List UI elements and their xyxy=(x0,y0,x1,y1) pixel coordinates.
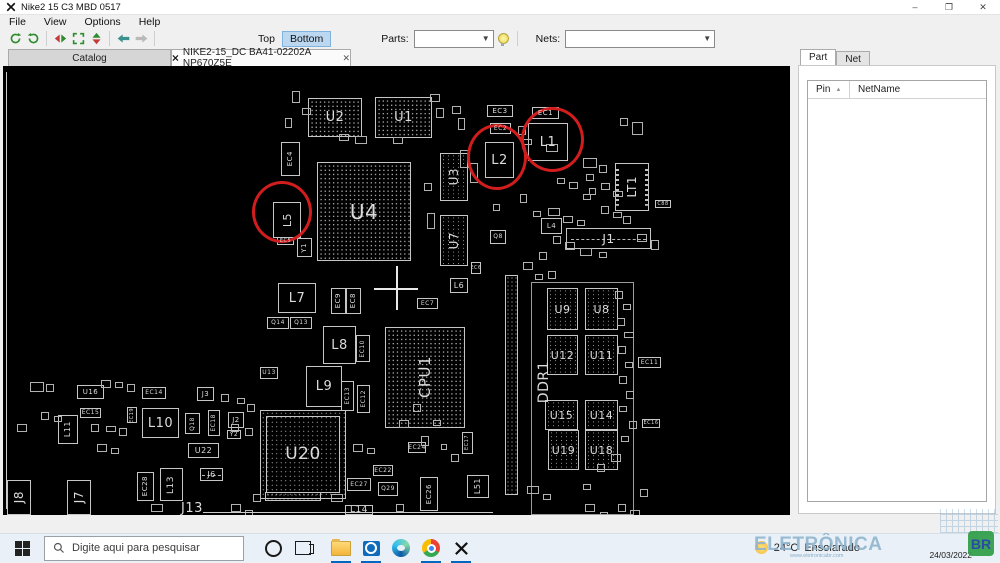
small-part xyxy=(600,512,608,515)
small-part xyxy=(533,211,541,217)
small-part xyxy=(651,240,659,250)
small-part xyxy=(353,444,363,452)
small-part xyxy=(101,380,111,388)
forward-arrow-icon[interactable] xyxy=(132,31,150,46)
chevron-down-icon: ▼ xyxy=(482,34,490,43)
small-part xyxy=(613,191,623,197)
component-Y1[interactable]: Y1 xyxy=(297,238,312,257)
temperature: 24°C xyxy=(774,542,799,554)
title-bar: Nike2 15 C3 MBD 0517 – ❐ ✕ xyxy=(0,0,1000,15)
component-EC17[interactable]: EC17 xyxy=(462,432,473,454)
component-C88[interactable]: C88 xyxy=(655,200,671,208)
component-U13[interactable]: U13 xyxy=(260,367,278,379)
menu-help[interactable]: Help xyxy=(130,16,170,28)
small-part xyxy=(451,454,459,462)
small-part xyxy=(221,394,229,402)
crosshair-v xyxy=(396,266,398,310)
small-part xyxy=(539,252,547,260)
small-part xyxy=(46,384,54,392)
parts-label: Parts: xyxy=(381,33,408,45)
small-part xyxy=(17,424,27,432)
small-part xyxy=(557,178,565,184)
toolbar: Top Bottom Parts: ▼ Nets: ▼ xyxy=(0,29,1000,48)
cortana-icon xyxy=(265,540,282,557)
component-EC7[interactable]: EC7 xyxy=(417,298,438,309)
back-arrow-icon[interactable] xyxy=(114,31,132,46)
small-part xyxy=(331,494,343,502)
small-part xyxy=(619,406,627,412)
component-L9[interactable]: L9 xyxy=(306,366,342,407)
top-side-button[interactable]: Top xyxy=(251,32,282,46)
component-EC18[interactable]: EC18 xyxy=(208,410,220,436)
small-part xyxy=(597,464,605,472)
small-part xyxy=(91,424,99,432)
small-part xyxy=(452,106,461,114)
small-part xyxy=(493,204,500,211)
component-Q29[interactable]: Q29 xyxy=(378,482,398,496)
tab-board-file[interactable]: NIKE2-15_DC BA41-02202A NP670Z5E ✕ xyxy=(171,49,351,66)
small-part xyxy=(553,236,561,244)
highlight-bulb-icon[interactable] xyxy=(498,33,509,44)
small-part xyxy=(621,436,629,442)
task-view-icon xyxy=(295,541,311,555)
tab-close-icon[interactable]: ✕ xyxy=(342,53,350,64)
small-part xyxy=(543,494,551,500)
component-U1[interactable]: U1 xyxy=(375,97,432,138)
small-part xyxy=(399,420,409,428)
flip-vertical-icon[interactable] xyxy=(87,31,105,46)
component-Q14[interactable]: Q14 xyxy=(267,317,289,329)
app-logo-icon xyxy=(6,2,16,12)
component-L14[interactable]: L14 xyxy=(345,505,373,515)
component-LT1[interactable]: LT1 xyxy=(615,163,649,211)
small-part xyxy=(619,376,627,384)
flip-horizontal-icon[interactable] xyxy=(51,31,69,46)
sun-icon xyxy=(755,541,768,554)
component-L10[interactable]: L10 xyxy=(142,408,179,438)
component-J6[interactable]: J6 xyxy=(200,468,223,481)
small-part xyxy=(247,404,255,412)
small-part xyxy=(523,262,533,270)
component-CPU1[interactable]: CPU1 xyxy=(385,327,465,428)
small-part xyxy=(624,332,634,338)
small-part xyxy=(548,208,560,216)
small-part xyxy=(580,248,592,256)
menu-bar: File View Options Help xyxy=(0,15,1000,29)
component-U20[interactable]: U20 xyxy=(260,410,346,499)
small-part xyxy=(441,444,447,450)
component-EC10[interactable]: EC10 xyxy=(356,335,370,362)
small-part xyxy=(119,428,127,436)
nets-label: Nets: xyxy=(536,33,561,45)
component-Q8[interactable]: Q8 xyxy=(490,230,506,244)
component-U2[interactable]: U2 xyxy=(308,98,362,137)
task-view-button[interactable] xyxy=(288,534,318,563)
menu-options[interactable]: Options xyxy=(76,16,130,28)
component-J3[interactable]: J3 xyxy=(197,387,214,401)
zoom-fit-icon[interactable] xyxy=(69,31,87,46)
component-EC9[interactable]: EC9 xyxy=(331,288,346,314)
sort-asc-icon: ▲ xyxy=(835,87,841,93)
start-button[interactable] xyxy=(0,534,44,563)
small-part xyxy=(565,242,575,250)
small-part xyxy=(292,91,300,103)
small-part xyxy=(41,412,49,420)
tab-net[interactable]: Net xyxy=(836,51,870,66)
small-part xyxy=(632,122,643,135)
small-part xyxy=(393,137,403,144)
board-outline-line xyxy=(6,72,7,509)
outlook-button[interactable] xyxy=(356,534,386,563)
component-EC16[interactable]: EC16 xyxy=(642,419,660,428)
window-title: Nike2 15 C3 MBD 0517 xyxy=(21,2,121,13)
col-pin[interactable]: Pin xyxy=(816,84,830,95)
small-part xyxy=(367,448,375,454)
taskbar-date[interactable]: 24/03/2022 xyxy=(929,550,972,560)
small-part xyxy=(111,448,119,454)
small-part xyxy=(106,426,116,432)
chevron-down-icon: ▼ xyxy=(703,34,711,43)
board-outline-line xyxy=(203,512,493,513)
file-explorer-button[interactable] xyxy=(326,534,356,563)
component-U7[interactable]: U7 xyxy=(440,215,468,266)
small-part xyxy=(599,252,607,258)
small-part xyxy=(30,382,44,392)
component-J8[interactable]: J8 xyxy=(7,480,31,515)
small-part xyxy=(458,118,465,130)
small-part xyxy=(430,94,440,102)
highlight-circle xyxy=(252,181,312,243)
small-part xyxy=(285,118,292,128)
small-part xyxy=(151,504,163,512)
small-part xyxy=(618,346,626,354)
small-part xyxy=(433,420,441,426)
pin-table[interactable]: Pin ▲ NetName xyxy=(807,80,987,502)
small-part xyxy=(620,118,628,126)
menu-view[interactable]: View xyxy=(35,16,76,28)
component-J7[interactable]: J7 xyxy=(67,480,91,515)
small-part xyxy=(586,174,594,181)
small-part xyxy=(520,194,527,203)
small-part xyxy=(625,362,633,368)
component-EC13[interactable]: EC13 xyxy=(341,381,354,411)
component-EC28[interactable]: EC28 xyxy=(137,472,154,501)
chrome-icon xyxy=(422,539,440,557)
component-EC6[interactable]: EC6 xyxy=(471,262,481,274)
component-EC14[interactable]: EC14 xyxy=(142,387,166,399)
folder-icon xyxy=(331,541,351,556)
edge-button[interactable] xyxy=(386,534,416,563)
bottom-side-button[interactable]: Bottom xyxy=(282,31,331,47)
small-part xyxy=(413,404,421,412)
component-L4[interactable]: L4 xyxy=(541,218,562,234)
small-part xyxy=(127,384,135,392)
small-part xyxy=(617,318,625,326)
small-part xyxy=(548,271,556,279)
small-part xyxy=(563,216,573,223)
component-L51[interactable]: L51 xyxy=(467,475,489,498)
boardviewer-icon xyxy=(454,541,469,556)
parts-combobox[interactable]: ▼ xyxy=(414,30,494,48)
component-EC24[interactable]: EC24 xyxy=(408,442,426,453)
small-part xyxy=(253,494,261,502)
nets-combobox[interactable]: ▼ xyxy=(565,30,715,48)
component-Q13[interactable]: Q13 xyxy=(290,317,312,329)
component-EC11[interactable]: EC11 xyxy=(638,357,661,368)
taskbar-search-input[interactable]: Digite aqui para pesquisar xyxy=(44,536,244,561)
component-EC15[interactable]: EC15 xyxy=(80,408,101,418)
component-U22[interactable]: U22 xyxy=(188,443,219,458)
tab-catalog[interactable]: Catalog xyxy=(8,49,171,66)
component-J13[interactable]: J13 xyxy=(175,502,209,515)
rotate-cw-icon[interactable] xyxy=(24,31,42,46)
chrome-button[interactable] xyxy=(416,534,446,563)
small-part xyxy=(355,136,367,144)
component-EC19[interactable]: EC19 xyxy=(127,407,137,423)
component-shape xyxy=(505,275,518,495)
small-part xyxy=(535,274,543,280)
small-part xyxy=(237,398,245,404)
small-part xyxy=(436,108,444,118)
small-part xyxy=(424,183,432,191)
search-icon xyxy=(53,542,65,554)
pin-table-header[interactable]: Pin ▲ NetName xyxy=(808,81,986,99)
small-part xyxy=(623,216,631,224)
small-part xyxy=(626,391,634,399)
small-part xyxy=(396,504,404,512)
small-part xyxy=(623,304,631,310)
component-EC8[interactable]: EC8 xyxy=(346,288,361,314)
small-part xyxy=(302,108,311,115)
small-part xyxy=(618,504,626,512)
small-part xyxy=(231,504,241,512)
windows-logo-icon xyxy=(15,541,30,556)
weather-tray[interactable]: 24°C Ensolarado xyxy=(755,533,860,562)
small-part xyxy=(585,504,595,512)
menu-file[interactable]: File xyxy=(0,16,35,28)
component-EC27[interactable]: EC27 xyxy=(347,478,371,491)
small-part xyxy=(583,484,591,490)
small-part xyxy=(615,291,623,299)
tab-part[interactable]: Part xyxy=(800,49,836,66)
side-panel: Part Net Pin ▲ NetName xyxy=(790,48,1000,515)
component-L7[interactable]: L7 xyxy=(278,283,316,313)
board-canvas[interactable]: U2U1EC3EC1EC2L2L1U3EC4L5EC5Y1U4U7EC6L7Q1… xyxy=(3,66,790,515)
small-part xyxy=(527,486,539,494)
small-part xyxy=(640,489,648,497)
small-part xyxy=(577,220,585,226)
component-L13[interactable]: L13 xyxy=(160,468,183,501)
component-EC4[interactable]: EC4 xyxy=(281,142,300,176)
maximize-button[interactable]: ❐ xyxy=(932,0,966,15)
component-Q18[interactable]: Q18 xyxy=(185,413,200,434)
part-panel-body: Pin ▲ NetName xyxy=(798,65,996,514)
component-EC3[interactable]: EC3 xyxy=(487,105,513,117)
small-part xyxy=(245,428,253,436)
component-L6[interactable]: L6 xyxy=(450,278,468,293)
small-part xyxy=(630,510,640,515)
component-EC22[interactable]: EC22 xyxy=(373,465,393,476)
component-U16[interactable]: U16 xyxy=(77,385,104,399)
outlook-icon xyxy=(363,541,380,556)
component-EC12[interactable]: EC12 xyxy=(357,385,370,413)
small-part xyxy=(629,421,637,429)
small-part xyxy=(601,183,610,190)
component-shape xyxy=(265,492,321,501)
small-part xyxy=(589,188,596,195)
small-part xyxy=(613,212,622,218)
small-part xyxy=(599,165,607,173)
small-part xyxy=(637,234,647,242)
edge-icon xyxy=(392,539,410,557)
board-tab-icon xyxy=(172,54,179,62)
component-U4[interactable]: U4 xyxy=(317,162,411,261)
small-part xyxy=(427,213,435,229)
small-part xyxy=(601,206,609,214)
boardviewer-app-button[interactable] xyxy=(446,534,476,563)
cortana-button[interactable] xyxy=(258,534,288,563)
small-part xyxy=(569,182,578,189)
component-EC26[interactable]: EC26 xyxy=(420,477,438,511)
col-netname[interactable]: NetName xyxy=(850,84,900,95)
small-part xyxy=(583,158,597,168)
small-part xyxy=(339,134,349,141)
minimize-button[interactable]: – xyxy=(898,0,932,15)
component-L8[interactable]: L8 xyxy=(323,326,356,364)
small-part xyxy=(115,382,123,388)
small-part xyxy=(54,416,62,422)
document-tabstrip: Catalog NIKE2-15_DC BA41-02202A NP670Z5E… xyxy=(0,48,790,66)
weather-condition: Ensolarado xyxy=(804,542,860,554)
rotate-ccw-icon[interactable] xyxy=(6,31,24,46)
small-part xyxy=(97,444,107,452)
close-button[interactable]: ✕ xyxy=(966,0,1000,15)
